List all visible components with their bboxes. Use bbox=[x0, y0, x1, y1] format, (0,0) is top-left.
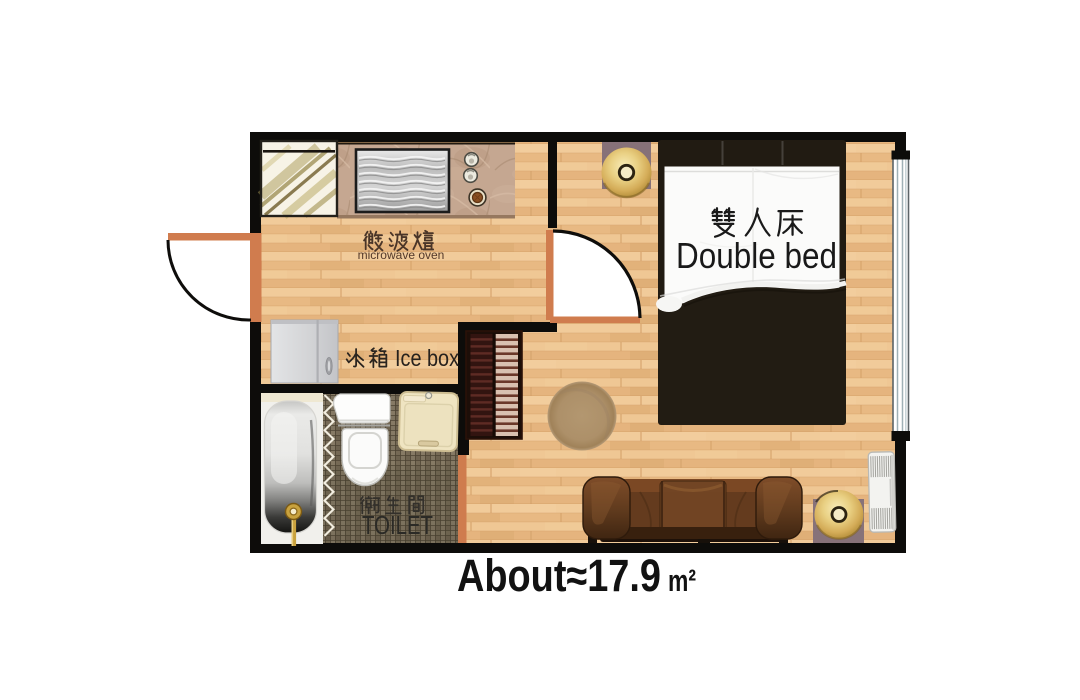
svg-text:Ice box: Ice box bbox=[395, 345, 459, 371]
svg-text:About≈17.9: About≈17.9 bbox=[457, 550, 661, 601]
svg-text:m²: m² bbox=[668, 563, 696, 598]
svg-text:Double bed: Double bed bbox=[676, 235, 837, 276]
svg-text:microwave oven: microwave oven bbox=[358, 248, 445, 262]
svg-text:TOILET: TOILET bbox=[362, 510, 433, 540]
